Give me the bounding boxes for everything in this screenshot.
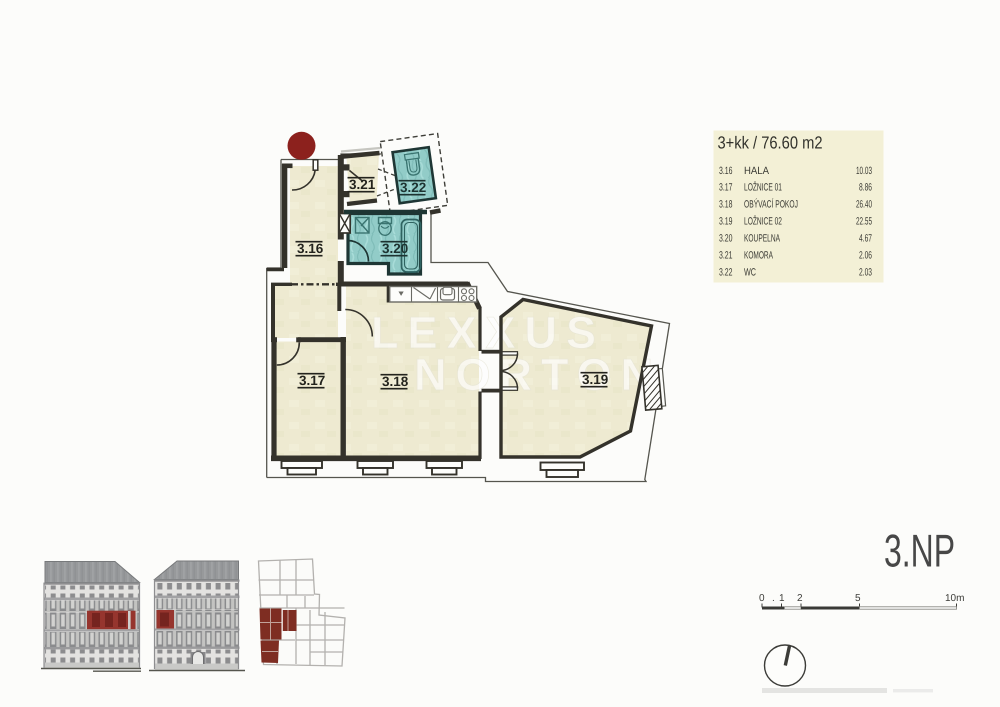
svg-text:.: . xyxy=(772,593,775,604)
svg-text:8.86: 8.86 xyxy=(859,182,872,194)
svg-text:3.17: 3.17 xyxy=(719,182,733,194)
svg-text:3.16: 3.16 xyxy=(297,241,324,256)
svg-text:3+kk / 76.60 m2: 3+kk / 76.60 m2 xyxy=(718,133,823,153)
svg-text:3.20: 3.20 xyxy=(719,233,733,245)
svg-text:OBÝVACÍ POKOJ: OBÝVACÍ POKOJ xyxy=(744,198,798,211)
svg-text:10m: 10m xyxy=(945,593,964,604)
svg-text:2: 2 xyxy=(797,593,803,604)
svg-text:1: 1 xyxy=(779,593,785,604)
svg-text:5: 5 xyxy=(855,593,861,604)
svg-text:KOMORA: KOMORA xyxy=(744,250,773,262)
svg-text:10.03: 10.03 xyxy=(856,165,872,177)
svg-text:26.40: 26.40 xyxy=(856,199,872,211)
svg-text:LOŽNICE 02: LOŽNICE 02 xyxy=(744,215,782,228)
svg-text:NORTON: NORTON xyxy=(414,349,662,400)
svg-text:LOŽNICE 01: LOŽNICE 01 xyxy=(744,181,782,194)
svg-text:3.22: 3.22 xyxy=(719,267,733,279)
svg-text:0: 0 xyxy=(759,593,765,604)
svg-text:2.03: 2.03 xyxy=(859,267,872,279)
svg-text:3.19: 3.19 xyxy=(582,372,608,387)
svg-text:HALA: HALA xyxy=(744,165,769,177)
svg-text:3.22: 3.22 xyxy=(400,180,426,195)
svg-text:2.06: 2.06 xyxy=(859,250,872,262)
svg-text:3.NP: 3.NP xyxy=(884,525,955,577)
svg-text:3.18: 3.18 xyxy=(382,374,409,389)
svg-text:3.20: 3.20 xyxy=(382,241,408,256)
svg-text:WC: WC xyxy=(744,267,756,279)
svg-text:4.67: 4.67 xyxy=(859,233,872,245)
svg-text:KOUPELNA: KOUPELNA xyxy=(744,233,780,245)
svg-text:3.21: 3.21 xyxy=(349,177,376,192)
svg-text:3.16: 3.16 xyxy=(719,165,733,177)
svg-text:3.18: 3.18 xyxy=(719,199,733,211)
svg-text:22.55: 22.55 xyxy=(856,216,872,228)
svg-text:3.17: 3.17 xyxy=(299,373,325,388)
svg-text:3.21: 3.21 xyxy=(719,250,733,262)
svg-text:3.19: 3.19 xyxy=(719,216,733,228)
